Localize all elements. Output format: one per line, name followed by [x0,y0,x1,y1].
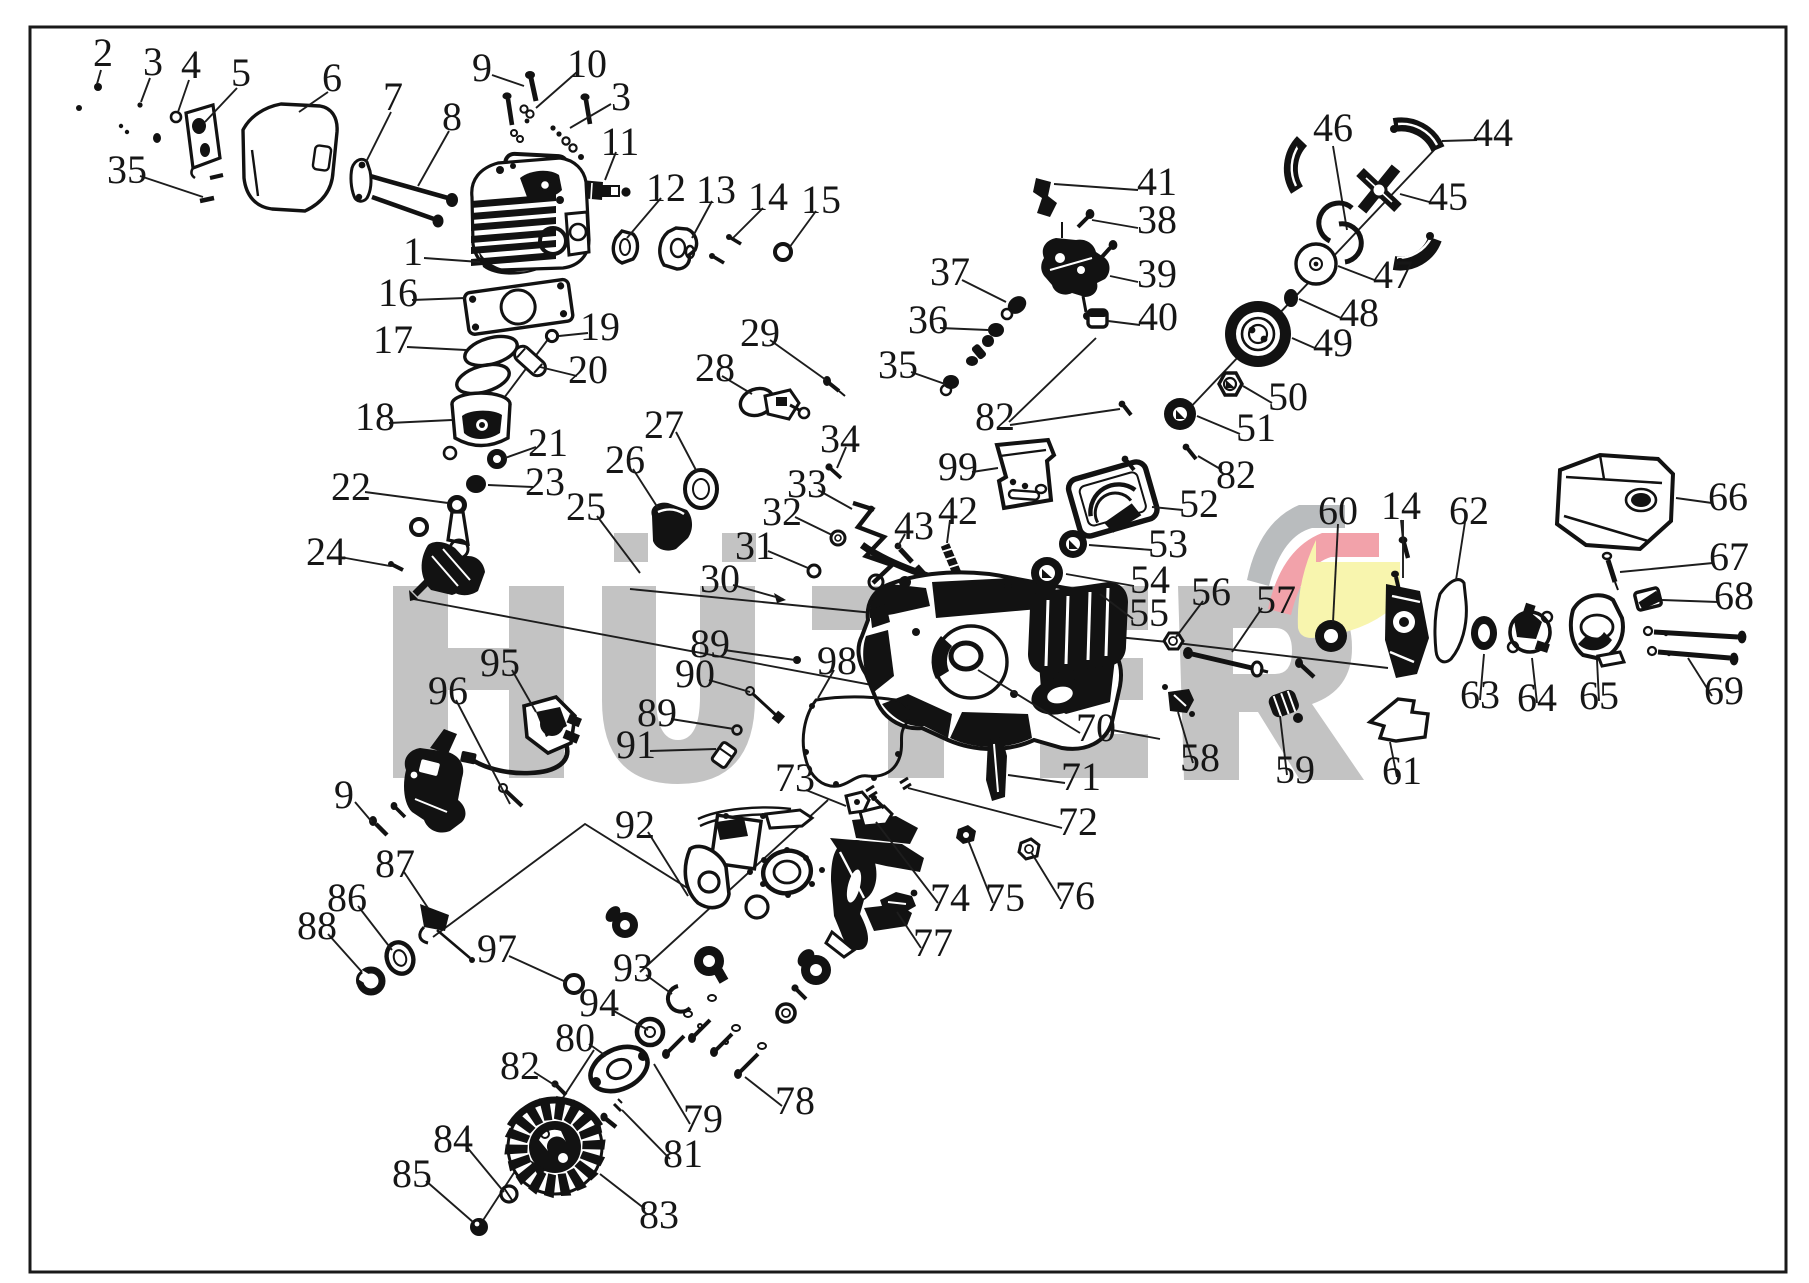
svg-text:30: 30 [700,556,740,601]
svg-text:64: 64 [1517,675,1557,720]
svg-text:58: 58 [1180,735,1220,780]
svg-text:28: 28 [695,345,735,390]
svg-text:76: 76 [1055,873,1095,918]
svg-text:37: 37 [930,249,970,294]
svg-text:9: 9 [472,45,492,90]
svg-text:4: 4 [181,42,201,87]
svg-text:14: 14 [1381,483,1421,528]
svg-text:27: 27 [644,402,684,447]
svg-text:51: 51 [1236,405,1276,450]
svg-text:68: 68 [1714,573,1754,618]
svg-text:81: 81 [663,1131,703,1176]
svg-text:93: 93 [613,945,653,990]
svg-text:69: 69 [1704,668,1744,713]
svg-text:47: 47 [1373,252,1413,297]
svg-text:38: 38 [1137,197,1177,242]
svg-text:23: 23 [525,459,565,504]
svg-text:71: 71 [1061,754,1101,799]
svg-text:82: 82 [975,394,1015,439]
svg-text:9: 9 [334,772,354,817]
svg-text:62: 62 [1449,488,1489,533]
svg-text:5: 5 [231,50,251,95]
svg-text:57: 57 [1256,577,1296,622]
svg-text:61: 61 [1382,748,1422,793]
svg-text:87: 87 [375,841,415,886]
svg-text:42: 42 [938,488,978,533]
svg-text:16: 16 [378,270,418,315]
svg-text:20: 20 [568,347,608,392]
svg-text:78: 78 [775,1078,815,1123]
svg-text:85: 85 [392,1151,432,1196]
svg-text:77: 77 [913,920,953,965]
svg-text:39: 39 [1137,251,1177,296]
svg-text:95: 95 [480,640,520,685]
svg-text:6: 6 [322,55,342,100]
svg-text:60: 60 [1318,488,1358,533]
svg-text:43: 43 [894,503,934,548]
svg-text:8: 8 [442,94,462,139]
svg-text:73: 73 [775,755,815,800]
svg-text:15: 15 [801,177,841,222]
svg-text:65: 65 [1579,673,1619,718]
svg-text:97: 97 [477,926,517,971]
svg-text:11: 11 [601,119,640,164]
svg-text:13: 13 [696,167,736,212]
svg-text:82: 82 [500,1043,540,1088]
svg-text:55: 55 [1129,590,1169,635]
svg-text:56: 56 [1191,569,1231,614]
svg-text:1: 1 [403,229,423,274]
svg-text:84: 84 [433,1116,473,1161]
svg-text:88: 88 [297,903,337,948]
svg-text:2: 2 [93,30,113,75]
svg-text:80: 80 [555,1015,595,1060]
svg-text:45: 45 [1428,174,1468,219]
svg-text:74: 74 [930,875,970,920]
svg-text:35: 35 [107,147,147,192]
svg-text:83: 83 [639,1192,679,1237]
svg-text:96: 96 [428,668,468,713]
svg-text:40: 40 [1138,294,1178,339]
svg-text:29: 29 [740,310,780,355]
svg-text:98: 98 [817,638,857,683]
svg-text:34: 34 [820,416,860,461]
svg-text:22: 22 [331,464,371,509]
svg-text:75: 75 [985,875,1025,920]
svg-text:3: 3 [143,39,163,84]
svg-text:35: 35 [878,342,918,387]
svg-text:99: 99 [938,444,978,489]
svg-text:14: 14 [748,174,788,219]
svg-text:3: 3 [611,74,631,119]
svg-text:63: 63 [1460,672,1500,717]
svg-text:31: 31 [735,523,775,568]
svg-text:12: 12 [646,165,686,210]
svg-text:26: 26 [605,437,645,482]
svg-text:72: 72 [1058,799,1098,844]
svg-text:44: 44 [1473,110,1513,155]
svg-text:59: 59 [1275,747,1315,792]
svg-text:90: 90 [675,651,715,696]
svg-text:18: 18 [355,394,395,439]
svg-text:82: 82 [1216,452,1256,497]
svg-text:46: 46 [1313,105,1353,150]
svg-text:36: 36 [908,297,948,342]
svg-text:49: 49 [1313,320,1353,365]
svg-text:10: 10 [567,41,607,86]
svg-text:25: 25 [566,484,606,529]
svg-text:7: 7 [383,74,403,119]
svg-text:70: 70 [1076,705,1116,750]
svg-text:91: 91 [616,722,656,767]
svg-text:24: 24 [306,529,346,574]
svg-text:66: 66 [1708,474,1748,519]
svg-text:17: 17 [373,317,413,362]
svg-text:52: 52 [1179,481,1219,526]
svg-text:19: 19 [580,304,620,349]
svg-text:92: 92 [615,802,655,847]
